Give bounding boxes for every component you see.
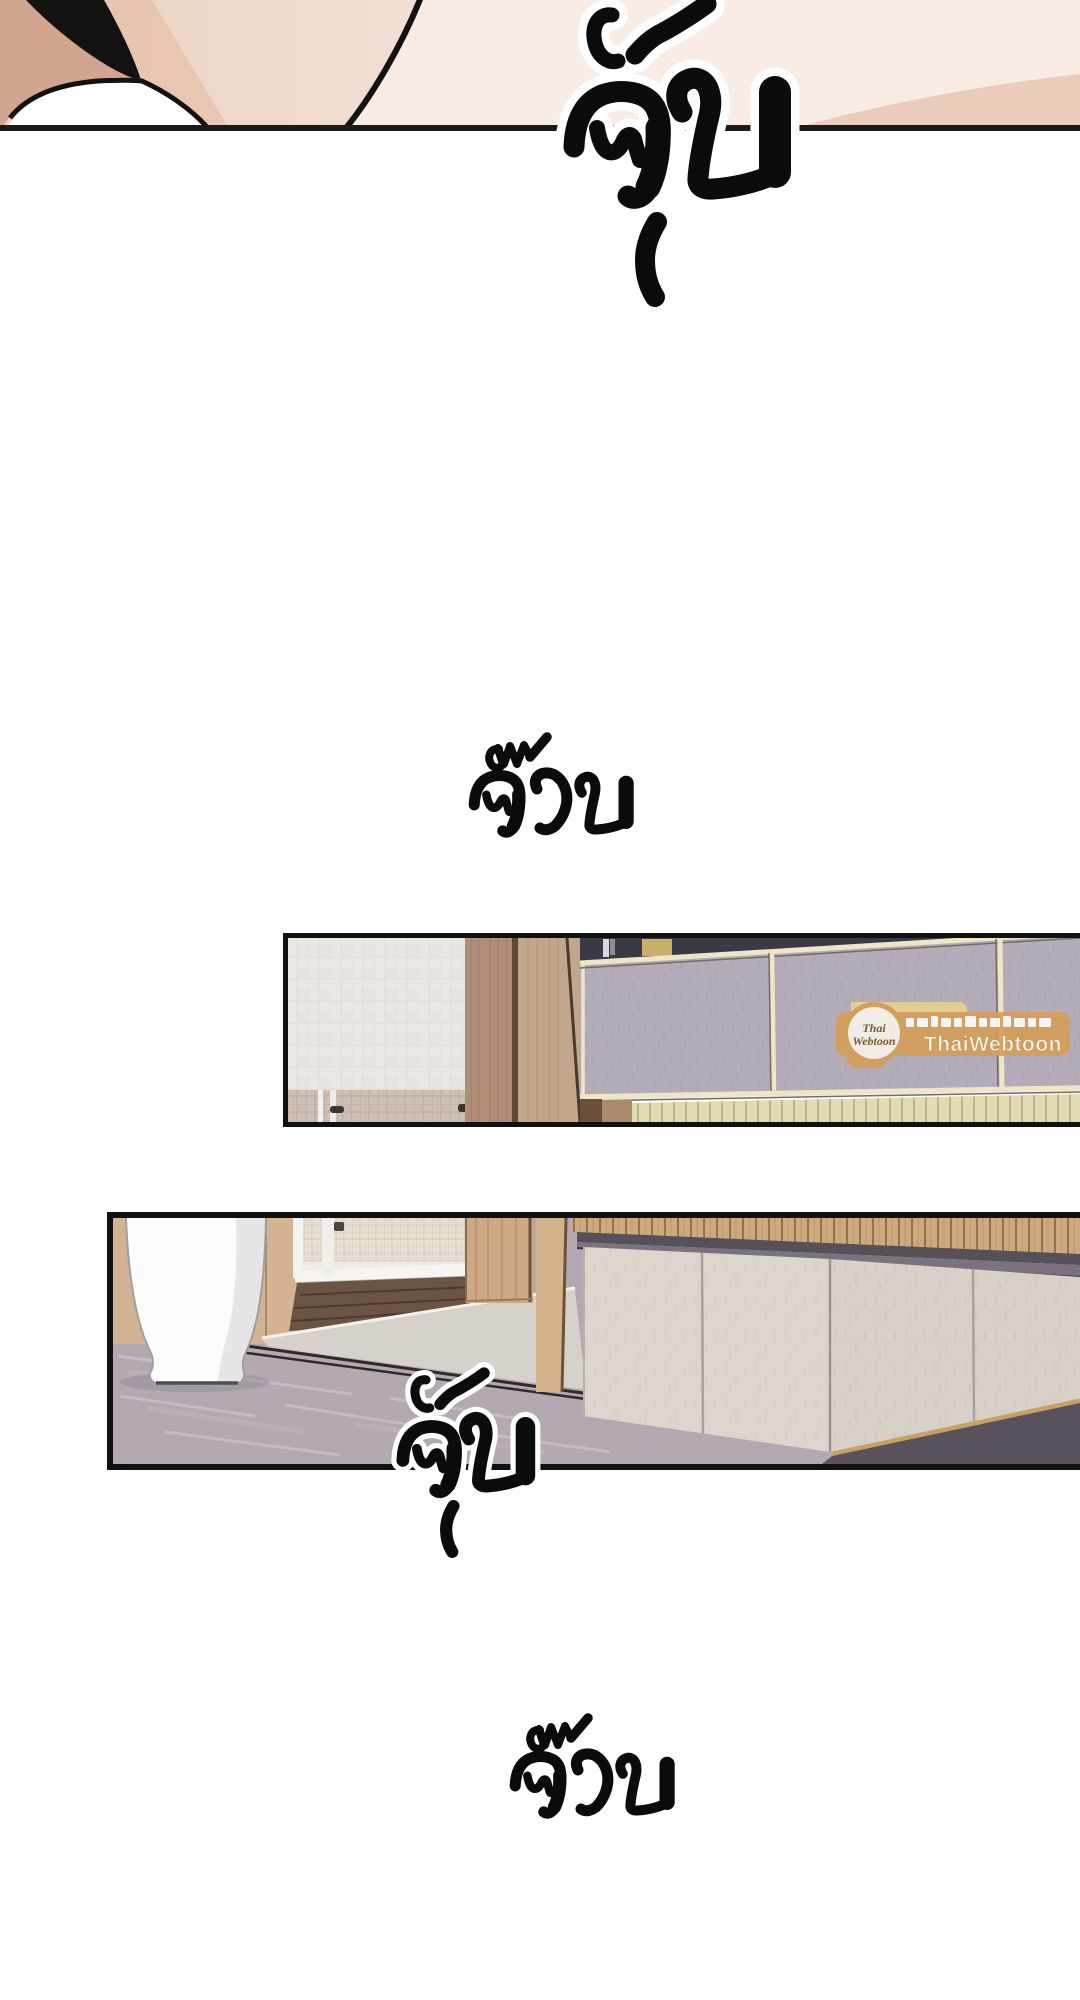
svg-text:Thai: Thai — [862, 1021, 886, 1035]
svg-text:Webtoon: Webtoon — [852, 1034, 895, 1048]
svg-text:ThaiWebtoon: ThaiWebtoon — [924, 1033, 1062, 1056]
